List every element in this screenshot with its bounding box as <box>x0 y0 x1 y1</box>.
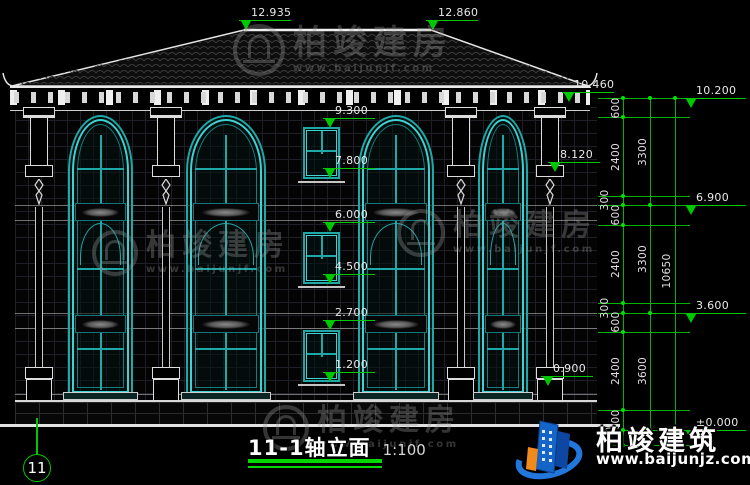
title-underline <box>248 459 382 463</box>
level-marker-eave: 10.460 <box>562 79 614 93</box>
level-marker-window: 2.700 <box>323 307 375 321</box>
pilaster-base <box>152 367 180 379</box>
level-triangle-icon <box>325 373 335 382</box>
watermark-url: www.baijunjf.com <box>146 264 290 275</box>
window-transom <box>487 168 519 170</box>
window-sill <box>473 392 533 400</box>
brand-logo-icon <box>512 417 594 483</box>
level-label: 6.000 <box>335 209 375 221</box>
watermark-arch-icon <box>248 35 271 58</box>
watermark: 柏竣建房 www.baijunjf.com <box>92 230 290 276</box>
pilaster-base <box>447 367 475 379</box>
cornice-dentils <box>14 92 586 103</box>
carved-swag <box>373 320 419 329</box>
level-triangle-icon <box>325 169 335 178</box>
watermark-logo-icon <box>397 209 445 257</box>
window-transom <box>195 168 257 170</box>
window-sill <box>298 286 345 288</box>
level-label: 4.500 <box>335 261 375 273</box>
level-triangle-icon <box>325 321 335 330</box>
pilaster-ornament-icon <box>31 179 47 205</box>
level-label: 1.200 <box>335 359 375 371</box>
window-sill <box>63 392 138 400</box>
pilaster-shaft <box>30 118 48 165</box>
level-label: 12.860 <box>438 7 478 19</box>
level-marker-wall-top: 8.120 <box>548 149 600 163</box>
window-transom <box>307 150 336 152</box>
level-triangle-icon <box>325 275 335 284</box>
carved-swag <box>202 208 251 217</box>
dim-label: 2400 <box>610 349 622 393</box>
spandrel-panel <box>75 203 126 221</box>
level-triangle-icon <box>686 99 696 108</box>
drawing-title: 11-1轴立面1:100 <box>248 432 426 462</box>
dim-tick <box>648 203 652 207</box>
axis-grid-line <box>36 418 38 455</box>
window-transom <box>77 168 124 170</box>
chain-line <box>623 98 624 445</box>
pilaster <box>27 107 51 400</box>
level-marker-ridge-left: 12.935 <box>239 7 291 21</box>
carved-swag <box>202 320 251 329</box>
level-marker-plinth: 0.900 <box>541 363 593 377</box>
spandrel-panel <box>193 315 259 333</box>
level-triangle-icon <box>325 223 335 232</box>
carved-swag <box>82 320 119 329</box>
level-label: 2.700 <box>335 307 375 319</box>
window-transom <box>367 268 425 270</box>
window-sill <box>298 181 345 183</box>
pilaster-pedestal <box>26 379 52 400</box>
level-triangle-icon <box>543 377 553 386</box>
watermark-name: 柏竣建房 <box>453 211 597 241</box>
title-underline <box>248 466 382 468</box>
watermark-arch-icon <box>105 240 125 260</box>
level-label: 10.200 <box>696 85 746 97</box>
pilaster-base <box>25 367 53 379</box>
level-marker-window: 7.800 <box>323 155 375 169</box>
dim-label: 3600 <box>637 349 649 393</box>
level-marker-ridge-right: 12.860 <box>426 7 478 21</box>
level-triangle-icon <box>686 206 696 215</box>
title-text: 11-1轴立面 <box>248 436 371 460</box>
dim-tick <box>673 96 677 100</box>
pilaster-collar <box>447 165 475 177</box>
pilaster-collar <box>152 165 180 177</box>
carved-swag <box>82 208 119 217</box>
level-marker-right: 10.200 <box>684 85 746 99</box>
scale-text: 1:100 <box>383 441 426 459</box>
window-transom <box>307 353 336 355</box>
pilaster-collar <box>25 165 53 177</box>
dim-label: 2400 <box>610 135 622 179</box>
elevation-drawing-sheet: 12.935 12.860 10.460 8.120 0.900 9.300 7… <box>0 0 750 485</box>
chain-line <box>650 98 651 445</box>
spandrel-panel <box>485 315 521 333</box>
pilaster-ornament-icon <box>158 179 174 205</box>
level-label: 12.935 <box>251 7 291 19</box>
pilaster-shaft <box>452 118 470 165</box>
dim-tick <box>648 311 652 315</box>
dim-label: 3300 <box>637 130 649 174</box>
window-transom <box>195 348 257 350</box>
spandrel-panel <box>193 203 259 221</box>
watermark-url: www.baijunjf.com <box>293 63 453 74</box>
level-label: 9.300 <box>335 105 375 117</box>
watermark-arch-icon <box>411 219 432 240</box>
watermark: 柏竣建房 www.baijunjf.com <box>233 24 453 76</box>
dim-label: 10650 <box>661 249 673 293</box>
level-triangle-icon <box>325 119 335 128</box>
pilaster-ornament-icon <box>542 179 558 205</box>
level-label: 3.600 <box>696 300 746 312</box>
window-transom <box>367 168 425 170</box>
carved-swag <box>490 320 516 329</box>
pilaster-drop <box>35 207 43 367</box>
pilaster-capital <box>150 107 182 118</box>
level-label: 10.460 <box>574 79 614 91</box>
eave-cornice <box>10 86 590 111</box>
spandrel-panel <box>75 315 126 333</box>
level-marker-window: 9.300 <box>323 105 375 119</box>
watermark-name: 柏竣建房 <box>293 26 453 60</box>
dim-label: 600 <box>610 300 622 344</box>
pilaster-shaft <box>157 118 175 165</box>
pilaster-pedestal <box>448 379 474 400</box>
chain-line <box>675 98 676 445</box>
pilaster-capital <box>534 107 566 118</box>
window-transom <box>77 348 124 350</box>
watermark-logo-icon <box>92 230 138 276</box>
dim-tick <box>648 96 652 100</box>
pilaster-pedestal <box>153 379 179 400</box>
level-marker-window: 4.500 <box>323 261 375 275</box>
window-sill <box>353 392 439 400</box>
dim-label: 600 <box>610 193 622 237</box>
level-label: 0.900 <box>553 363 593 375</box>
pilaster-ornament-icon <box>453 179 469 205</box>
watermark-logo-icon <box>233 24 285 76</box>
level-marker-window: 1.200 <box>323 359 375 373</box>
watermark: 柏竣建房 www.baijunjf.com <box>397 209 597 257</box>
level-triangle-icon <box>564 93 574 102</box>
watermark-name: 柏竣建房 <box>146 231 290 261</box>
level-label: 8.120 <box>560 149 600 161</box>
brand-url: www.baijunjz.com <box>596 450 750 468</box>
brand-block: 柏竣建筑 www.baijunjz.com <box>512 417 750 485</box>
axis-bubble: 11 <box>23 454 51 482</box>
window-transom <box>367 348 425 350</box>
window-transom <box>487 348 519 350</box>
level-marker-window: 6.000 <box>323 209 375 223</box>
dim-label: 3300 <box>637 237 649 281</box>
dim-label: 2400 <box>610 242 622 286</box>
level-label: 6.900 <box>696 192 746 204</box>
window-sill <box>298 384 345 386</box>
level-marker-right: 6.900 <box>684 192 746 206</box>
window-transom <box>307 255 336 257</box>
level-label: 7.800 <box>335 155 375 167</box>
window-sill <box>181 392 271 400</box>
level-triangle-icon <box>550 163 560 172</box>
level-marker-right: 3.600 <box>684 300 746 314</box>
pilaster-capital <box>23 107 55 118</box>
pilaster-capital <box>445 107 477 118</box>
window-transom <box>487 268 519 270</box>
watermark-url: www.baijunjf.com <box>453 244 597 255</box>
level-triangle-icon <box>686 314 696 323</box>
